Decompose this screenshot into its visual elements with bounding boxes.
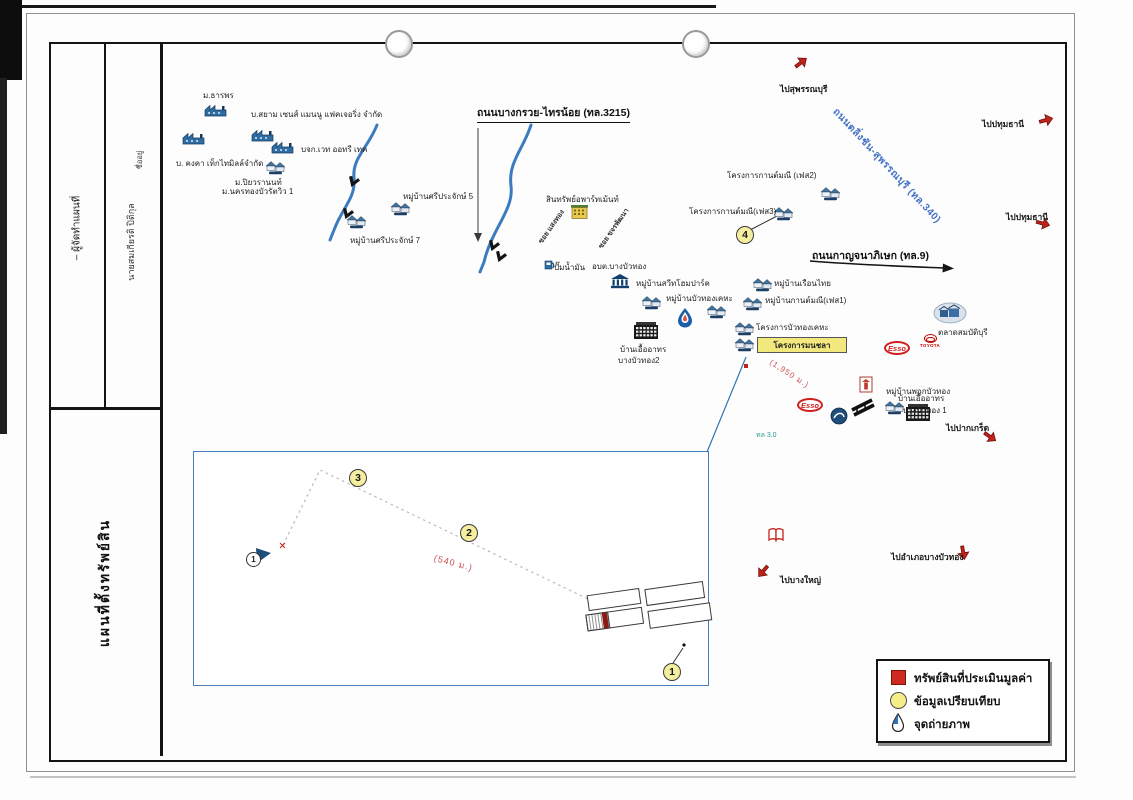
red-mark	[744, 364, 748, 368]
direction-arrow-icon	[755, 563, 772, 580]
place-label: ม.นครทองบัวรัตวิว 1	[222, 188, 293, 196]
place-label: หมู่บ้านสวีทโฮมปาร์ค	[636, 280, 710, 288]
place-label: บ้านเอื้ออาทร	[898, 395, 944, 403]
direction-arrow-icon	[1038, 113, 1054, 127]
scanned-map-page: – ผู้จัดทำแผนที่ ชื่ออยู่ นายสมเกียรติ ป…	[0, 0, 1133, 800]
legend-subject-label: ทรัพย์สินที่ประเมินมูลค่า	[914, 670, 1032, 688]
legend-photo-label: จุดถ่ายภาพ	[914, 716, 970, 734]
place-label: หมู่บ้านศรีประจักษ์ 5	[403, 193, 473, 201]
village-icon	[885, 402, 904, 415]
village-icon	[707, 306, 726, 319]
road-label-9: ถนนกาญจนาภิเษก (ทล.9)	[812, 247, 929, 264]
legend-box: ทรัพย์สินที่ประเมินมูลค่า ข้อมูลเปรียบเท…	[876, 659, 1050, 743]
village-icon	[642, 297, 661, 310]
comparable-marker-1: 1	[663, 663, 681, 681]
marker4-leader	[750, 216, 777, 230]
canal-arrow-icon	[495, 251, 506, 261]
direction-pakkret: ไปปากเกร็ด	[946, 421, 989, 435]
overpass-icon	[852, 400, 874, 415]
place-label: บางบัวทอง 1	[903, 407, 947, 415]
gas-pump-icon	[545, 261, 554, 269]
village-icon	[743, 298, 762, 311]
apartment-icon	[571, 205, 588, 219]
place-label: ปั๊มน้ำมัน	[554, 264, 585, 272]
toyota-wordmark: TOYOTA	[916, 343, 944, 348]
canal-east	[480, 125, 531, 272]
highway-note: ทล 3.0	[756, 430, 777, 441]
housing-building-icon	[634, 322, 658, 339]
village-icon	[735, 323, 754, 336]
place-label: ม.ปิยวรานนท์	[235, 179, 282, 187]
esso-logo: Esso	[884, 341, 910, 355]
factory-icon	[183, 134, 204, 145]
village-icon	[266, 162, 285, 175]
direction-arrow-icon	[792, 54, 809, 71]
place-label: บ. คงคา เท็กไทมิลล์จำกัด	[176, 160, 263, 168]
direction-pathumthani-2: ไปปทุมธานี	[1006, 210, 1048, 224]
market-icon	[934, 303, 966, 323]
place-label: โครงการกานต์มณี(เฟส3)	[689, 208, 776, 216]
shrine-icon	[860, 377, 872, 392]
place-label: หมู่บ้านเรือนไทย	[774, 280, 831, 288]
place-label: หมู่บ้านบัวทองเคหะ	[666, 295, 733, 303]
legend-photo-icon	[891, 713, 905, 732]
place-label: บ้านเอื้ออาทร	[620, 346, 666, 354]
place-label: บางบัวทอง2	[618, 357, 659, 365]
village-icon	[774, 208, 793, 221]
factory-icon	[272, 143, 293, 154]
village-icon	[391, 203, 410, 216]
photo-point-marker: 1	[246, 552, 261, 567]
subject-property-box: โครงการมนชลา	[757, 337, 847, 353]
place-label: อบต.บางบัวทอง	[592, 263, 646, 271]
inset-route	[280, 470, 590, 600]
comparable-marker-4: 4	[736, 226, 754, 244]
bank-logo-icon	[831, 408, 847, 424]
place-label: บจก.เวท ออทรี เทค	[301, 146, 367, 154]
place-label: สินทรัพย์อพาร์ทเม้นท์	[546, 196, 619, 204]
village-icon	[821, 188, 840, 201]
inset-subject-dot	[682, 643, 685, 646]
place-label: หมู่บ้านกานต์มณี(เฟส1)	[765, 297, 846, 305]
village-icon	[735, 339, 754, 352]
factory-icon	[205, 106, 226, 117]
road-3215-leader	[474, 128, 482, 242]
toyota-logo: TOYOTA	[916, 334, 944, 348]
comparable-marker-2: 2	[460, 524, 478, 542]
place-label: ตลาดสมบัติบุรี	[938, 329, 988, 337]
legend-comparable-label: ข้อมูลเปรียบเทียบ	[914, 693, 1000, 711]
place-label: บ.สยาม เซนส์ แมนนู แฟคเจอริ่ง จำกัด	[251, 111, 382, 119]
inset-marker1-leader	[673, 648, 683, 663]
factory-icon	[252, 131, 273, 142]
legend-subject-icon	[891, 670, 906, 685]
legend-comparable-icon	[890, 692, 907, 709]
ptt-station-icon	[678, 308, 692, 328]
direction-bangyai: ไปบางใหญ่	[780, 573, 821, 587]
inset-buildings	[583, 579, 711, 637]
village-icon	[347, 216, 366, 229]
place-label: โครงการกานต์มณี (เฟส2)	[727, 172, 816, 180]
toyota-emblem-icon	[924, 334, 937, 343]
place-label: หมู่บ้านศรีประจักษ์ 7	[350, 237, 420, 245]
subject-inset-leader	[707, 357, 746, 452]
direction-pathumthani-1: ไปปทุมธานี	[982, 117, 1024, 131]
book-icon	[769, 529, 783, 540]
esso-logo: Esso	[797, 398, 823, 412]
comparable-marker-3: 3	[349, 469, 367, 487]
road-label-3215: ถนนบางกรวย-ไทรน้อย (ทล.3215)	[477, 104, 630, 123]
direction-suphanburi: ไปสุพรรณบุรี	[780, 82, 827, 96]
municipal-office-icon	[611, 274, 629, 288]
village-icon	[753, 279, 772, 292]
place-label: ม.ธารพร	[203, 92, 234, 100]
direction-amphoe-bangbuathong: ไปอำเภอบางบัวทอง	[891, 550, 964, 564]
place-label: โครงการบัวทองเคหะ	[756, 324, 829, 332]
